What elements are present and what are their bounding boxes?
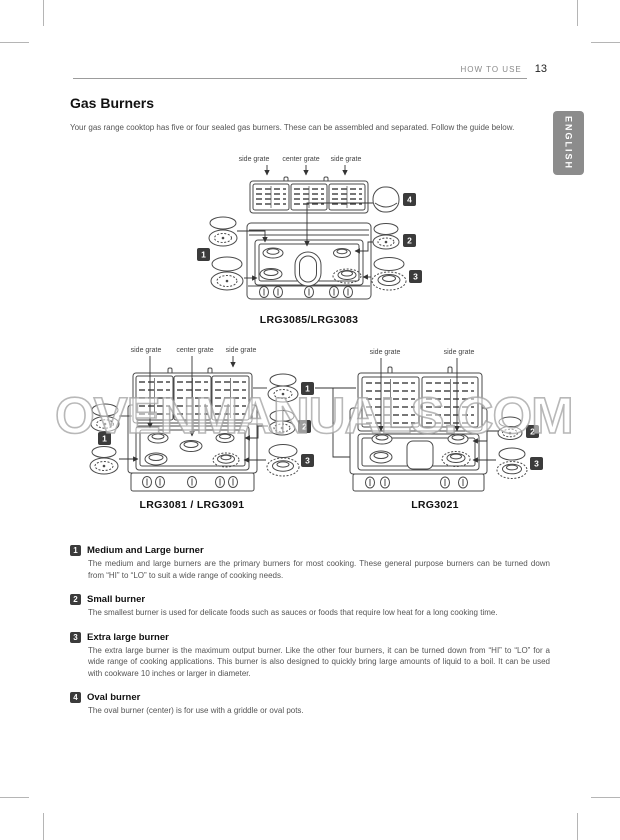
- marker-1-label: 1: [201, 250, 206, 260]
- burner-back-left: [263, 248, 283, 258]
- page-number: 13: [535, 63, 547, 75]
- grate-label-center: center grate: [176, 347, 213, 354]
- grate-assembly: [250, 177, 368, 213]
- control-knobs-left: [143, 477, 238, 488]
- diagram-caption-right: LRG3021: [411, 499, 459, 511]
- crop-mark: [43, 813, 44, 840]
- item-number-badge: 1: [70, 545, 81, 556]
- burner-front-left: [370, 451, 392, 463]
- grate-label-left: side grate: [239, 156, 270, 163]
- burner-back-right: [334, 249, 351, 258]
- header-section-label: HOW TO USE: [460, 65, 521, 74]
- burner-back-right: [448, 434, 468, 444]
- diagram-caption: LRG3085/LRG3083: [260, 314, 358, 326]
- burner-back-right: [216, 434, 234, 443]
- marker-2-label: 2: [407, 236, 412, 246]
- marker-2-label: 2: [302, 422, 307, 432]
- burner-center-oval: [295, 252, 321, 286]
- manual-page: HOW TO USE 13 ENGLISH Gas Burners Your g…: [0, 0, 620, 840]
- grate-label-right: side grate: [444, 349, 475, 356]
- crop-mark: [577, 0, 578, 26]
- label-arrows: [267, 165, 345, 175]
- grate-assembly-right: [358, 367, 482, 431]
- crop-mark: [577, 813, 578, 840]
- burner-back-left: [148, 433, 168, 443]
- crop-mark: [43, 0, 44, 26]
- item-title: Oval burner: [87, 692, 140, 703]
- burner-front-left: [145, 453, 167, 465]
- burner-legend: 1 Medium and Large burner The medium and…: [70, 545, 552, 730]
- item-body: The oval burner (center) is for use with…: [88, 705, 550, 717]
- grate-label-right: side grate: [226, 347, 257, 354]
- item-number-badge: 4: [70, 692, 81, 703]
- crop-mark: [0, 42, 29, 43]
- crop-mark: [591, 797, 620, 798]
- center-plate: [407, 441, 433, 469]
- page-header: HOW TO USE 13: [73, 63, 547, 75]
- language-tab-label: ENGLISH: [564, 116, 574, 170]
- grate-label-center: center grate: [282, 156, 319, 163]
- item-body: The smallest burner is used for delicate…: [88, 607, 550, 619]
- cooktop-body: [247, 223, 371, 299]
- item-title: Extra large burner: [87, 632, 169, 643]
- item-body: The extra large burner is the maximum ou…: [88, 645, 550, 680]
- item-body: The medium and large burners are the pri…: [88, 558, 550, 581]
- grate-assembly-left: [133, 368, 252, 423]
- diagram-caption-left: LRG3081 / LRG3091: [140, 499, 245, 511]
- grate-label-right: side grate: [331, 156, 362, 163]
- burner-back-left: [372, 434, 392, 444]
- diagram-lrg3085: side grate center grate side grate: [185, 150, 430, 330]
- burner-center: [180, 441, 202, 452]
- language-tab: ENGLISH: [553, 111, 584, 175]
- item-number-badge: 2: [70, 594, 81, 605]
- marker-3-label-right: 3: [534, 459, 539, 469]
- marker-1-label: 1: [305, 384, 310, 394]
- burner-cap-set-upper-left: [91, 404, 132, 432]
- intro-text: Your gas range cooktop has five or four …: [70, 123, 555, 132]
- marker-3-label: 3: [413, 272, 418, 282]
- legend-item-2: 2 Small burner The smallest burner is us…: [70, 594, 552, 619]
- item-title: Small burner: [87, 594, 145, 605]
- grate-label-left: side grate: [370, 349, 401, 356]
- item-number-badge: 3: [70, 632, 81, 643]
- grate-label-left: side grate: [131, 347, 162, 354]
- marker-1-left-label: 1: [102, 434, 107, 444]
- page-title: Gas Burners: [70, 95, 154, 111]
- marker-2-label-right: 2: [530, 427, 535, 437]
- legend-item-4: 4 Oval burner The oval burner (center) i…: [70, 692, 552, 717]
- marker-4-label: 4: [407, 195, 412, 205]
- legend-item-1: 1 Medium and Large burner The medium and…: [70, 545, 552, 581]
- crop-mark: [591, 42, 620, 43]
- item-title: Medium and Large burner: [87, 545, 204, 556]
- diagram-lrg3081-lrg3021: side grate center grate side grate 1: [60, 340, 585, 515]
- marker-3-label: 3: [305, 456, 310, 466]
- burner-front-left: [260, 269, 282, 280]
- header-rule: [73, 78, 527, 79]
- legend-item-3: 3 Extra large burner The extra large bur…: [70, 632, 552, 680]
- crop-mark: [0, 797, 29, 798]
